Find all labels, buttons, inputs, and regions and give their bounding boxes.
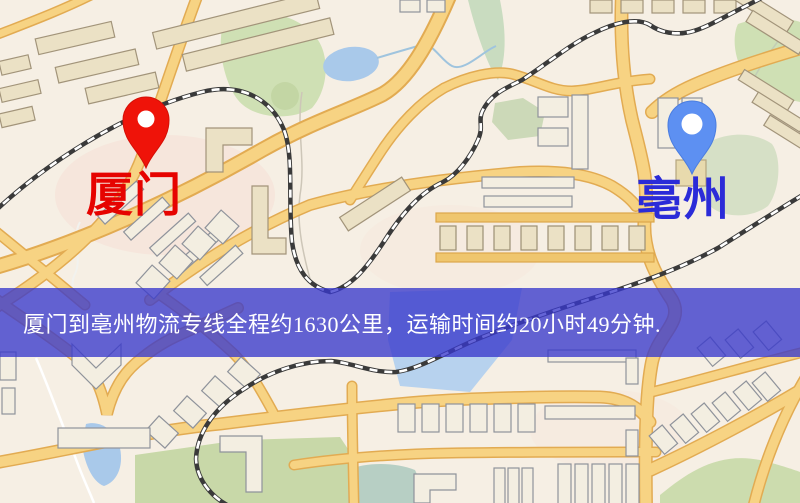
route-info-text: 厦门到亳州物流专线全程约1630公里，运输时间约20小时49分钟. (0, 307, 661, 339)
destination-city-label: 亳州 (636, 177, 730, 223)
map-artwork (0, 0, 800, 503)
route-info-banner: 厦门到亳州物流专线全程约1630公里，运输时间约20小时49分钟. (0, 288, 800, 357)
map-canvas[interactable]: 厦门 亳州 厦门到亳州物流专线全程约1630公里，运输时间约20小时49分钟. (0, 0, 800, 503)
origin-city-label: 厦门 (86, 173, 182, 220)
